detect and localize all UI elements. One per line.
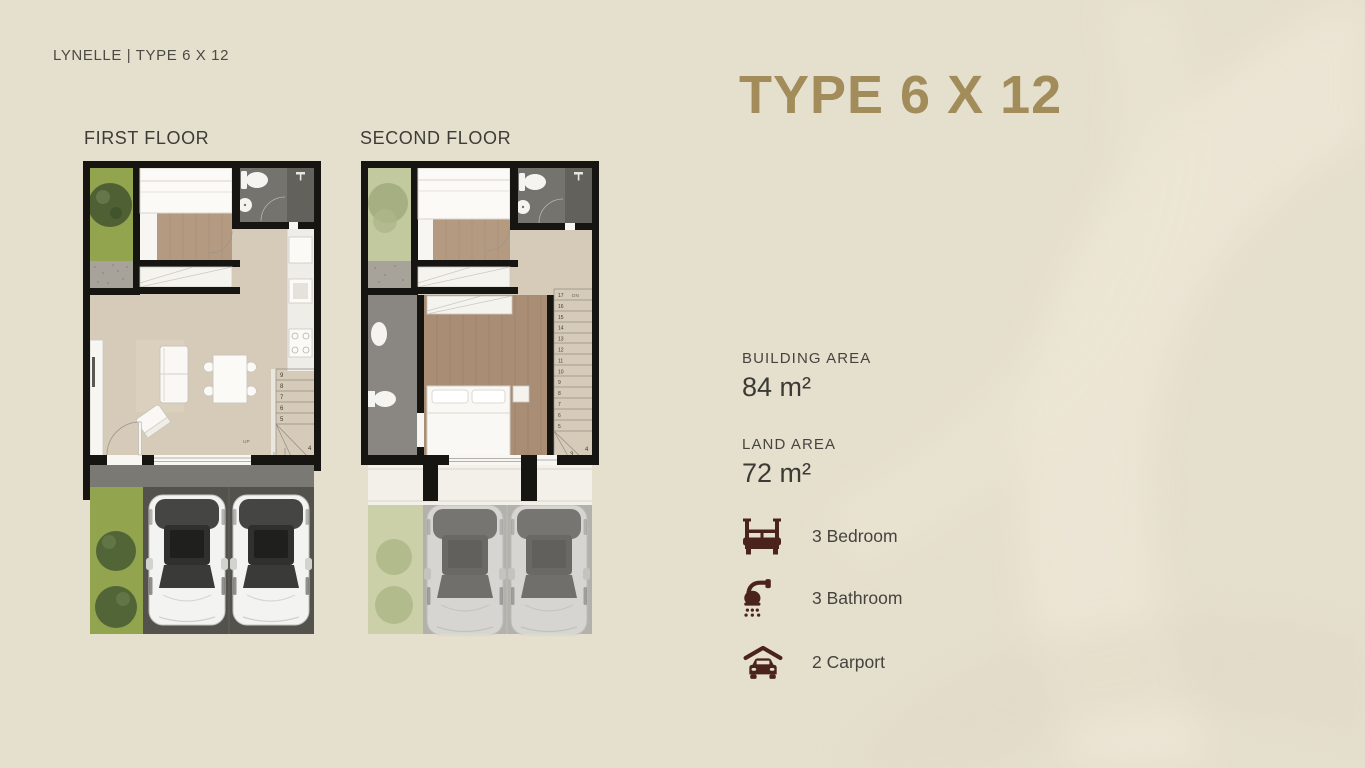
carport-icon [742, 644, 788, 681]
car [146, 495, 228, 625]
wall [510, 168, 518, 225]
amenity-row-carport: 2 Carport [742, 638, 885, 686]
wardrobe [140, 267, 232, 287]
stove [289, 329, 312, 357]
amenity-row-bedroom: 3 Bedroom [742, 512, 898, 560]
up-label: UP [243, 439, 250, 445]
land-area-label: LAND AREA [742, 436, 836, 453]
wall [298, 222, 314, 229]
bathroom-left [368, 295, 417, 461]
svg-text:14: 14 [558, 326, 564, 332]
front-window [154, 455, 251, 465]
wall [133, 287, 240, 294]
door-gap [289, 222, 298, 229]
kitchen-counter [287, 229, 314, 371]
wall [232, 222, 289, 229]
wall [133, 168, 140, 295]
front-lawn [90, 487, 143, 634]
wall [411, 168, 418, 295]
building-area-block: BUILDING AREA 84 m² [742, 350, 871, 403]
bed [418, 168, 510, 219]
bedroom-count-label: 3 Bedroom [812, 526, 898, 547]
dn-label: DN [572, 293, 579, 299]
svg-text:10: 10 [558, 369, 564, 375]
wall [361, 161, 599, 168]
yard-view-below [368, 505, 592, 635]
svg-text:15: 15 [558, 315, 564, 321]
shower-room [565, 168, 592, 225]
page-title: TYPE 6 X 12 [739, 64, 1062, 126]
svg-text:9: 9 [558, 380, 561, 386]
wall [90, 288, 133, 295]
window [449, 455, 521, 465]
second-floor-label: SECOND FLOOR [360, 128, 511, 149]
wardrobe-2 [427, 296, 512, 314]
building-area-value: 84 m² [742, 372, 871, 403]
shower-room [287, 168, 314, 223]
door-gap [417, 413, 424, 447]
wardrobe [418, 267, 510, 287]
porch [90, 465, 314, 487]
land-area-block: LAND AREA 72 m² [742, 436, 836, 489]
wall [592, 161, 599, 465]
toilet [374, 391, 396, 407]
wall [314, 161, 321, 471]
bed [140, 168, 232, 213]
garden [88, 168, 133, 261]
first-floor-label: FIRST FLOOR [84, 128, 209, 149]
bedroom-top [418, 168, 510, 261]
second-floor-plan: 171615141312111098765 4 3 DN [361, 161, 599, 636]
rear-wall [368, 455, 592, 465]
carport-count-label: 2 Carport [812, 652, 885, 673]
wall [575, 223, 592, 230]
svg-text:7: 7 [558, 402, 561, 408]
car [230, 495, 312, 625]
svg-text:13: 13 [558, 337, 564, 343]
wall [361, 161, 368, 465]
gravel-path [90, 261, 133, 288]
svg-text:17: 17 [558, 293, 564, 299]
pillar [521, 465, 537, 501]
building-area-label: BUILDING AREA [742, 350, 871, 367]
svg-text:12: 12 [558, 348, 564, 354]
entry-door-leaf [139, 422, 142, 455]
wall [83, 161, 90, 500]
svg-text:16: 16 [558, 304, 564, 310]
svg-text:8: 8 [558, 391, 561, 397]
bathroom-top [516, 168, 565, 225]
bathroom [238, 168, 287, 223]
car-faded [424, 505, 506, 635]
garden-view [368, 168, 411, 261]
brand-header: LYNELLE | TYPE 6 X 12 [53, 47, 229, 64]
land-area-value: 72 m² [742, 458, 836, 489]
sink [371, 322, 387, 346]
svg-text:11: 11 [558, 358, 563, 364]
pillar [423, 465, 438, 501]
wall [510, 223, 567, 230]
first-floor-plan: 98765 123 4 UP [83, 161, 321, 636]
sofa [160, 346, 188, 403]
balcony [368, 465, 592, 505]
wall [83, 161, 321, 168]
wall [232, 168, 240, 223]
amenity-row-bathroom: 3 Bathroom [742, 574, 902, 622]
wall [411, 287, 518, 294]
bathroom-count-label: 3 Bathroom [812, 588, 902, 609]
wall [368, 288, 411, 295]
gravel-path [368, 261, 411, 288]
nightstand [513, 386, 529, 402]
carport [143, 487, 314, 634]
bedroom [140, 168, 232, 261]
wall [133, 260, 240, 267]
door-gap [565, 223, 575, 230]
car-faded [508, 505, 590, 635]
bedroom-main [424, 295, 547, 461]
tv-cabinet [90, 340, 103, 456]
page: LYNELLE | TYPE 6 X 12 FIRST FLOOR SECOND… [0, 0, 1365, 768]
svg-text:5: 5 [558, 424, 561, 430]
bed-icon [742, 518, 788, 555]
svg-text:6: 6 [558, 413, 561, 419]
shower-icon [742, 577, 788, 619]
wall [411, 260, 518, 267]
